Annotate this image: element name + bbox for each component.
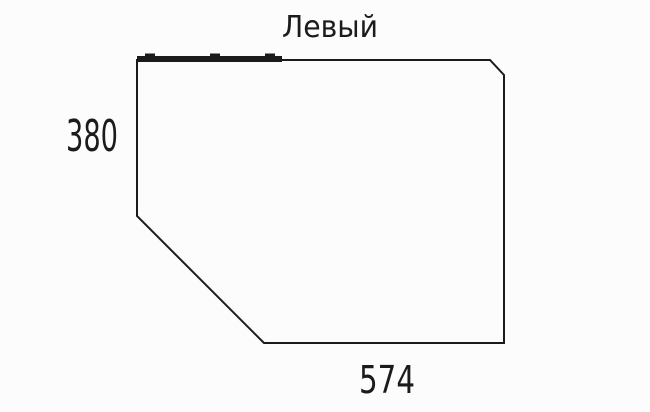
drawing-title: Левый [282,10,378,45]
panel-outline [137,60,504,343]
drawing-canvas: Левый 380 574 [0,0,650,412]
panel-drawing: Левый 380 574 [0,0,650,412]
height-dimension-label: 380 [66,111,118,162]
fastener-tick-icon [210,54,220,58]
width-dimension-label: 574 [359,358,415,402]
fastener-tick-icon [265,54,275,58]
fastener-tick-icon [145,54,155,58]
